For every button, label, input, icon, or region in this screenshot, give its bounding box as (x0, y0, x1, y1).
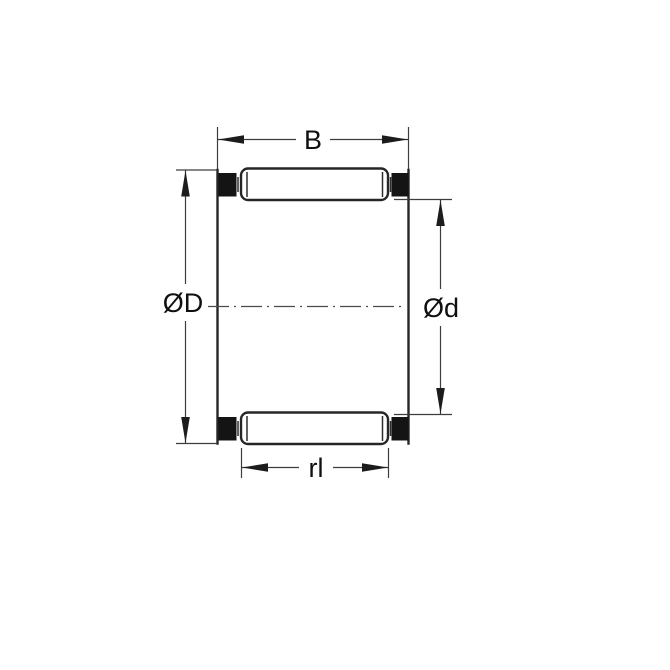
cage-section-top-left (219, 174, 236, 197)
arrowhead-id-top (436, 200, 445, 226)
drawing-canvas: B ØD Ød (0, 0, 670, 670)
dimension-inner-diameter: Ød (394, 200, 459, 415)
arrowhead-od-top (181, 171, 190, 197)
arrowhead-id-bottom (436, 388, 445, 414)
top-roller (238, 169, 391, 201)
roller-length-label: rl (309, 453, 324, 483)
dimension-roller-length: rl (242, 448, 389, 483)
top-roller-body (241, 169, 388, 201)
outer-diameter-label: ØD (163, 288, 204, 318)
inner-diameter-label: Ød (423, 293, 459, 323)
cage-section-top-right (392, 174, 408, 197)
bottom-roller (238, 413, 391, 445)
cage-section-bottom-right (392, 418, 408, 441)
arrowhead-od-bottom (181, 417, 190, 443)
bearing-cross-section-diagram: B ØD Ød (0, 0, 670, 670)
arrowhead-rl-left (242, 463, 268, 472)
arrowhead-b-right (382, 135, 408, 144)
bottom-roller-body (241, 413, 388, 445)
dimension-width-B: B (218, 125, 409, 169)
arrowhead-rl-right (362, 463, 388, 472)
width-dimension-label: B (304, 125, 322, 155)
cage-section-bottom-left (219, 418, 236, 441)
arrowhead-b-left (218, 135, 244, 144)
